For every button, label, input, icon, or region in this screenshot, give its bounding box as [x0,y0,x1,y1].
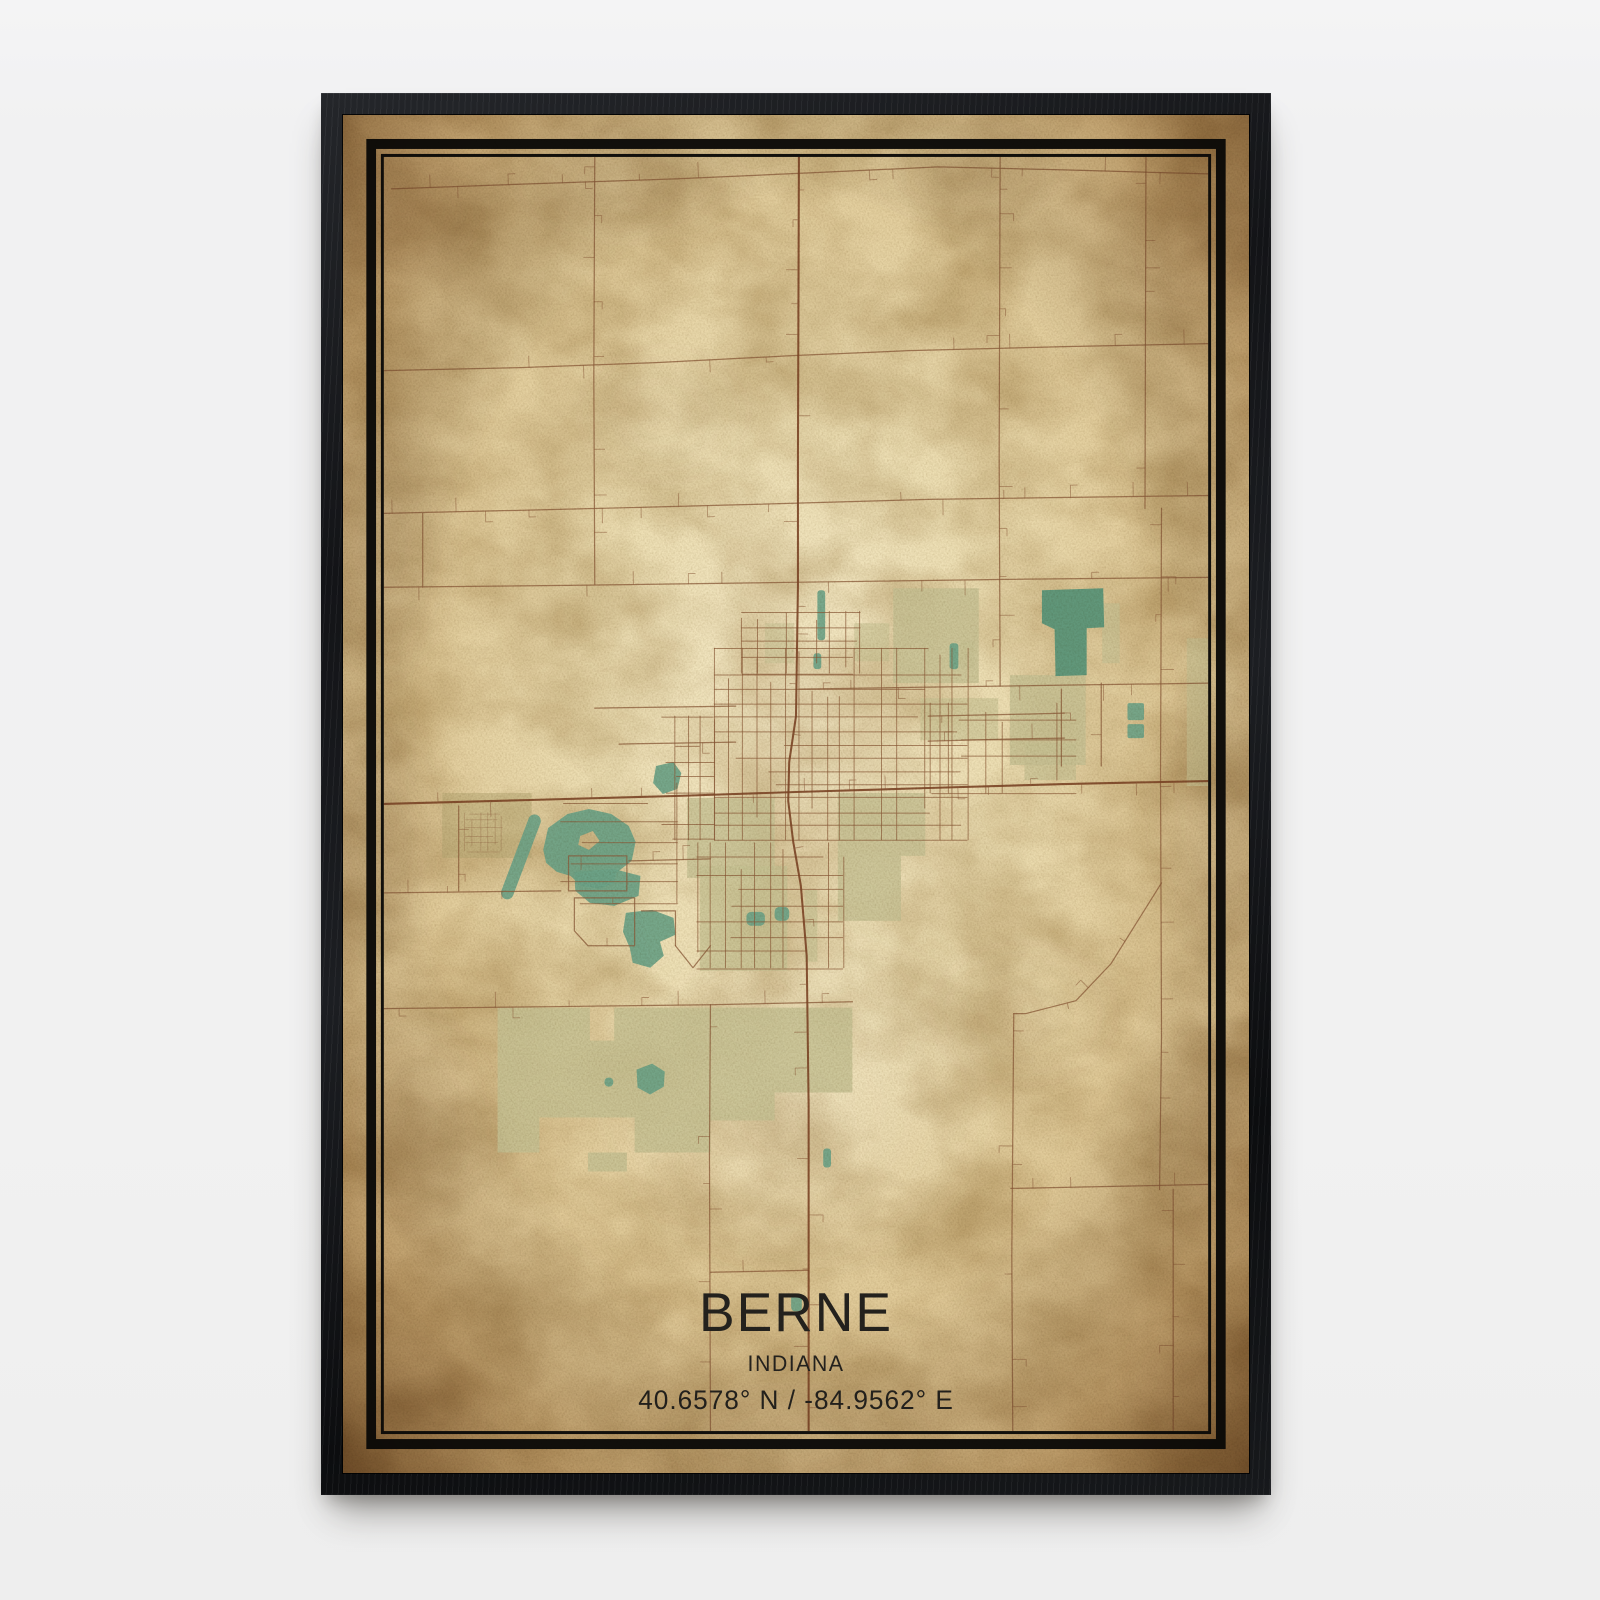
paper-vignette [343,115,1249,1473]
map-poster-svg: BERNE INDIANA 40.6578° N / -84.9562° E [343,115,1249,1473]
map-poster-paper: BERNE INDIANA 40.6578° N / -84.9562° E [343,115,1249,1473]
picture-frame: BERNE INDIANA 40.6578° N / -84.9562° E [321,93,1271,1495]
product-photo-background: BERNE INDIANA 40.6578° N / -84.9562° E [0,0,1600,1600]
